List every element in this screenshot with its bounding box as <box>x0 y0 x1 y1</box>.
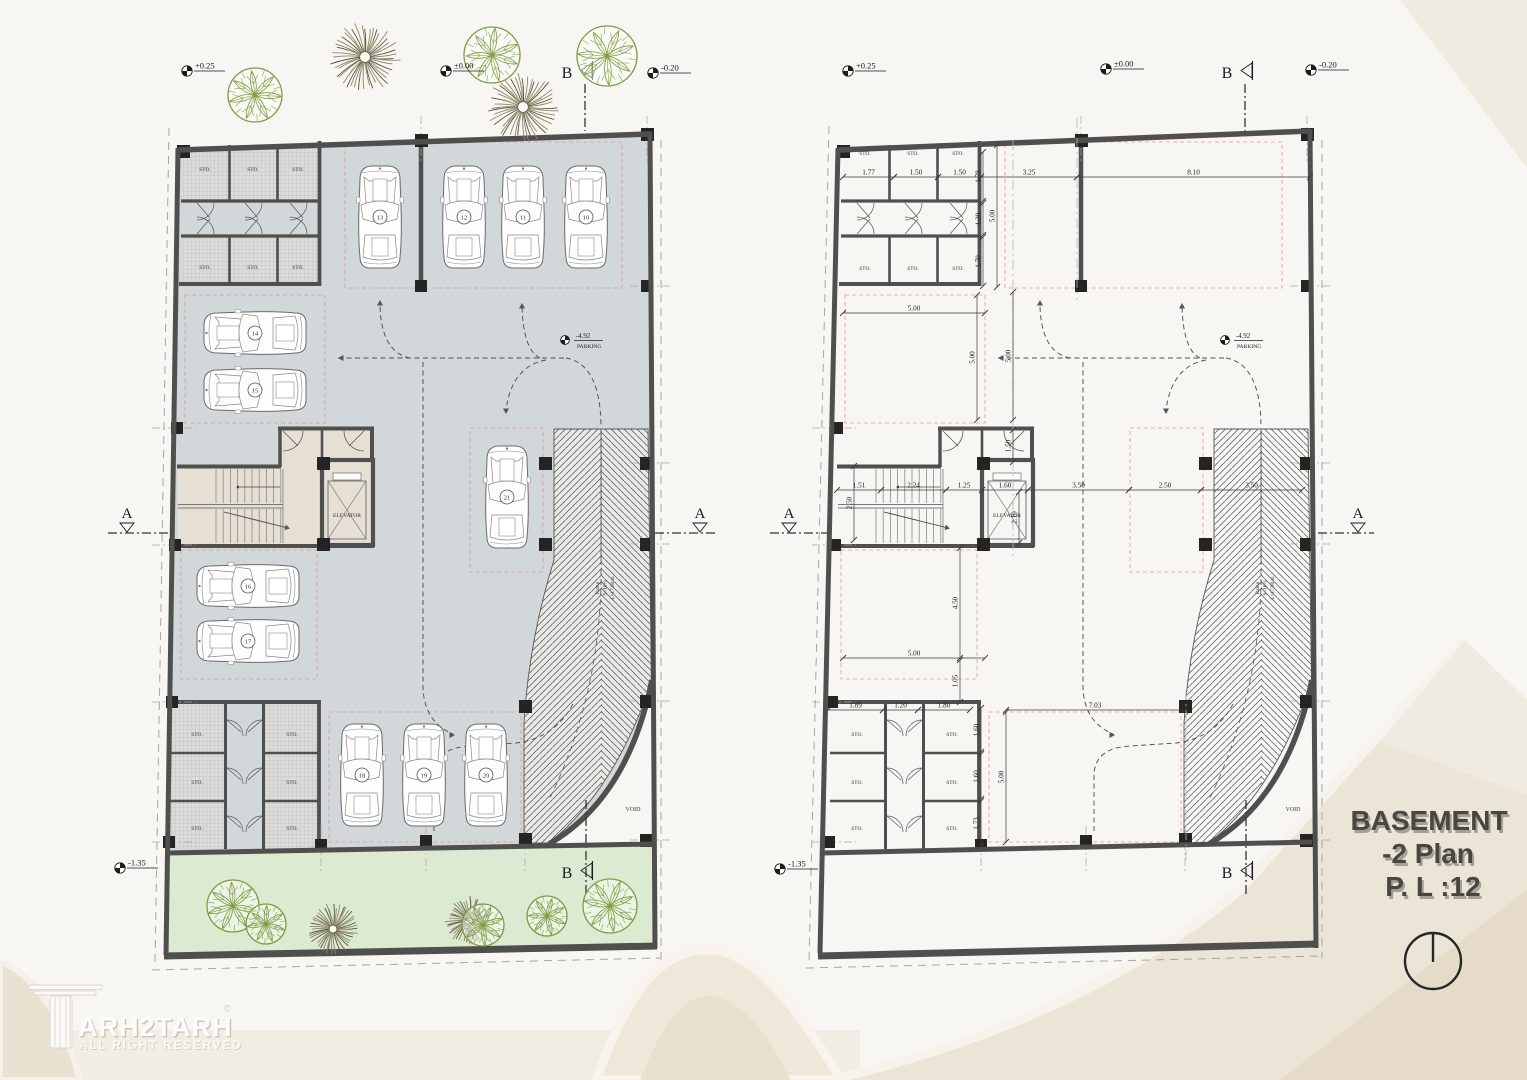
svg-text:ARH2TARH: ARH2TARH <box>78 1012 233 1042</box>
svg-text:STO.: STO. <box>199 167 210 173</box>
svg-text:1.50: 1.50 <box>910 169 923 177</box>
svg-text:STO.: STO. <box>859 151 870 157</box>
svg-text:B: B <box>562 65 573 82</box>
svg-text:©: © <box>224 1004 232 1015</box>
svg-text:B: B <box>562 865 573 882</box>
svg-text:2.10: 2.10 <box>1011 511 1019 524</box>
svg-text:S=16%: S=16% <box>1263 580 1269 596</box>
svg-text:1.77: 1.77 <box>862 169 875 177</box>
svg-text:+0.25: +0.25 <box>195 61 215 71</box>
svg-text:STO.: STO. <box>952 266 963 272</box>
svg-text:20: 20 <box>483 772 490 779</box>
svg-text:-1.35: -1.35 <box>128 858 146 868</box>
svg-text:ELEVATOR: ELEVATOR <box>333 513 361 519</box>
svg-text:1.89: 1.89 <box>849 702 862 710</box>
svg-text:8.10: 8.10 <box>1187 169 1200 177</box>
svg-text:5.00: 5.00 <box>989 209 997 222</box>
svg-text:-2 Plan: -2 Plan <box>1382 838 1474 869</box>
svg-text:-1.35: -1.35 <box>788 859 806 869</box>
svg-text:1.70: 1.70 <box>975 255 983 268</box>
svg-text:5.00: 5.00 <box>908 650 921 658</box>
svg-text:2.50: 2.50 <box>846 496 854 509</box>
svg-text:STO.: STO. <box>946 780 957 786</box>
svg-text:STO.: STO. <box>946 826 957 832</box>
svg-text:2.24: 2.24 <box>907 482 920 490</box>
svg-text:+0.25: +0.25 <box>856 61 876 71</box>
svg-text:S=16%: S=16% <box>603 580 609 596</box>
svg-text:A: A <box>784 506 795 522</box>
svg-text:1.60: 1.60 <box>999 482 1012 490</box>
svg-text:1.78: 1.78 <box>975 170 983 183</box>
svg-text:3.25: 3.25 <box>1023 169 1036 177</box>
svg-text:5.00: 5.00 <box>1005 349 1013 362</box>
svg-text:13: 13 <box>377 214 384 221</box>
svg-text:Ramp: Ramp <box>1255 581 1261 594</box>
svg-text:STO.: STO. <box>199 265 210 271</box>
svg-text:21: 21 <box>504 494 511 501</box>
svg-text:PARKING: PARKING <box>577 344 601 350</box>
svg-text:1.60: 1.60 <box>973 723 981 736</box>
svg-text:STO.: STO. <box>191 732 202 738</box>
svg-text:STO.: STO. <box>292 167 303 173</box>
svg-text:16: 16 <box>245 583 252 590</box>
svg-text:STO.: STO. <box>952 151 963 157</box>
svg-text:VOID: VOID <box>1286 807 1302 813</box>
svg-text:L=17.90 m: L=17.90 m <box>610 576 616 599</box>
svg-text:Ramp: Ramp <box>595 581 601 594</box>
svg-text:5.00: 5.00 <box>908 305 921 313</box>
svg-text:STO.: STO. <box>946 732 957 738</box>
svg-text:15: 15 <box>252 387 259 394</box>
svg-text:ALL RIGHT RESERVED: ALL RIGHT RESERVED <box>79 1040 242 1052</box>
svg-text:1.50: 1.50 <box>953 169 966 177</box>
svg-text:STO.: STO. <box>286 732 297 738</box>
svg-text:1.51: 1.51 <box>853 482 866 490</box>
svg-text:1.20: 1.20 <box>894 702 907 710</box>
svg-text:STO.: STO. <box>907 151 918 157</box>
svg-text:10: 10 <box>583 214 590 221</box>
svg-text:1.60: 1.60 <box>973 770 981 783</box>
svg-text:STO.: STO. <box>286 826 297 832</box>
svg-text:STO.: STO. <box>907 266 918 272</box>
svg-text:17: 17 <box>245 638 252 645</box>
svg-text:P. L :12: P. L :12 <box>1385 871 1480 902</box>
svg-text:STO.: STO. <box>191 780 202 786</box>
svg-text:18: 18 <box>359 772 366 779</box>
svg-text:STO.: STO. <box>851 732 862 738</box>
svg-text:A: A <box>1353 506 1364 522</box>
svg-text:BASEMENT: BASEMENT <box>1350 805 1507 836</box>
svg-text:A: A <box>695 506 706 522</box>
svg-text:5.00: 5.00 <box>969 351 977 364</box>
svg-text:-4.92: -4.92 <box>1236 333 1251 340</box>
svg-text:19: 19 <box>421 772 428 779</box>
svg-text:1.20: 1.20 <box>975 212 983 225</box>
svg-text:1.25: 1.25 <box>958 482 971 490</box>
svg-text:STO.: STO. <box>247 167 258 173</box>
svg-text:PARKING: PARKING <box>1237 344 1261 350</box>
svg-text:1.73: 1.73 <box>973 817 981 830</box>
svg-text:3.50: 3.50 <box>1072 482 1085 490</box>
svg-text:-4.92: -4.92 <box>576 333 591 340</box>
svg-text:A: A <box>122 506 133 522</box>
svg-text:B: B <box>1222 65 1233 82</box>
svg-text:11: 11 <box>520 214 526 221</box>
svg-text:7.03: 7.03 <box>1089 702 1102 710</box>
svg-text:STO.: STO. <box>191 826 202 832</box>
svg-text:±0.00: ±0.00 <box>454 61 474 71</box>
svg-text:12: 12 <box>461 214 468 221</box>
svg-text:1.50: 1.50 <box>1005 439 1013 452</box>
svg-text:14: 14 <box>252 330 259 337</box>
svg-text:5.00: 5.00 <box>998 770 1006 783</box>
svg-text:2.50: 2.50 <box>1159 482 1172 490</box>
svg-text:STO.: STO. <box>286 780 297 786</box>
svg-text:4.50: 4.50 <box>952 596 960 609</box>
svg-text:-0.20: -0.20 <box>1319 60 1337 70</box>
svg-text:L=17.90 m: L=17.90 m <box>1270 576 1276 599</box>
svg-text:1.80: 1.80 <box>938 702 951 710</box>
svg-text:-0.20: -0.20 <box>661 63 679 73</box>
svg-text:STO.: STO. <box>859 266 870 272</box>
svg-text:STO.: STO. <box>851 780 862 786</box>
svg-text:STO.: STO. <box>247 265 258 271</box>
svg-text:STO.: STO. <box>292 265 303 271</box>
svg-text:±0.00: ±0.00 <box>1114 59 1134 69</box>
svg-text:1.05: 1.05 <box>952 674 960 687</box>
svg-text:B: B <box>1222 865 1233 882</box>
svg-text:3.50: 3.50 <box>1245 482 1258 490</box>
svg-text:VOID: VOID <box>626 807 642 813</box>
svg-text:STO.: STO. <box>851 826 862 832</box>
